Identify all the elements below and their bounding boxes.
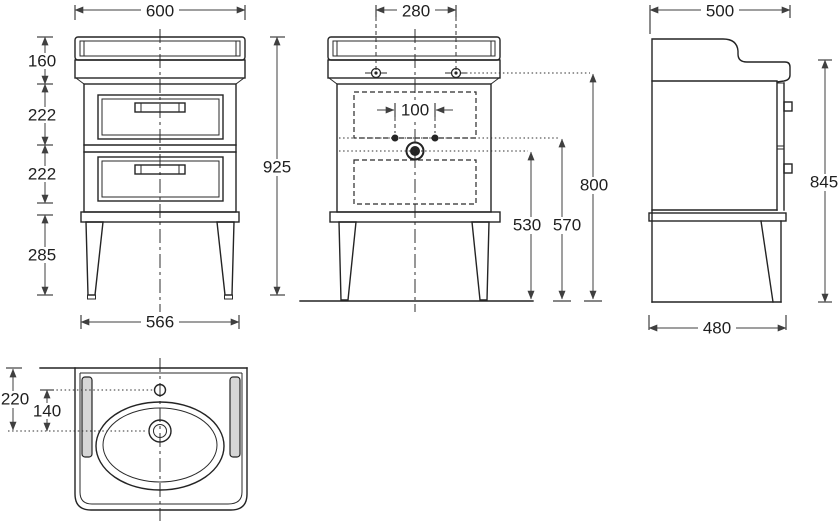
side-bottom-frame (649, 213, 786, 221)
dim-label-570: 570 (553, 216, 581, 235)
dim-supply-spacing: 100 (377, 101, 453, 134)
dim-label-925: 925 (263, 158, 291, 177)
dim-width-bottom: 566 (81, 313, 239, 332)
dim-label-220: 220 (1, 390, 29, 409)
dim-tap-to-drain: 140 (30, 390, 64, 431)
plan-view: 220 140 (0, 358, 247, 521)
front-view: 600 160 222 222 285 (25, 2, 296, 332)
side-drawer-fronts (777, 83, 792, 210)
technical-drawing: 600 160 222 222 285 (0, 0, 839, 523)
dim-label-140: 140 (33, 402, 61, 421)
fittings-left-leg (339, 222, 356, 300)
dim-label-160: 160 (28, 52, 56, 71)
dim-width-top: 600 (75, 2, 245, 21)
dim-total-height: 925 (258, 37, 296, 295)
front-right-leg (217, 222, 234, 299)
dim-worktop-height: 800 (574, 74, 614, 299)
dim-label-222-lower: 222 (28, 165, 56, 184)
backsplash-2 (328, 37, 500, 60)
front-left-leg (86, 222, 103, 299)
basin-side-rail-left (82, 377, 92, 457)
dim-side-height: 845 (805, 60, 839, 302)
fittings-right-leg (472, 222, 489, 300)
side-handle-upper (784, 102, 792, 111)
dim-label-600: 600 (146, 2, 174, 21)
dim-label-280: 280 (402, 2, 430, 21)
dim-label-500: 500 (706, 2, 734, 21)
side-front-leg (761, 221, 781, 302)
side-view: 500 845 480 (649, 2, 839, 338)
side-handle-lower (784, 164, 792, 173)
dim-label-800: 800 (580, 176, 608, 195)
basin-side-rail-right (230, 377, 240, 457)
dim-label-285: 285 (28, 246, 56, 265)
fittings-view: 280 100 530 570 800 (300, 2, 614, 313)
side-profile (652, 39, 790, 302)
dim-label-100: 100 (401, 101, 429, 120)
dim-drain-height: 530 (508, 152, 546, 299)
dim-label-530: 530 (513, 216, 541, 235)
dim-depth-bottom: 480 (649, 315, 786, 338)
dim-depth-top: 500 (650, 2, 790, 35)
dim-label-222-upper: 222 (28, 106, 56, 125)
dim-supply-height: 570 (548, 139, 586, 299)
dim-edge-to-drain: 220 (0, 368, 31, 430)
dim-chain-left: 160 222 222 285 (25, 37, 61, 295)
dim-label-480: 480 (703, 319, 731, 338)
countertop-2 (328, 60, 500, 84)
dim-label-845: 845 (810, 173, 838, 192)
technical-drawing-page: 600 160 222 222 285 (0, 0, 839, 523)
dim-label-566: 566 (146, 313, 174, 332)
